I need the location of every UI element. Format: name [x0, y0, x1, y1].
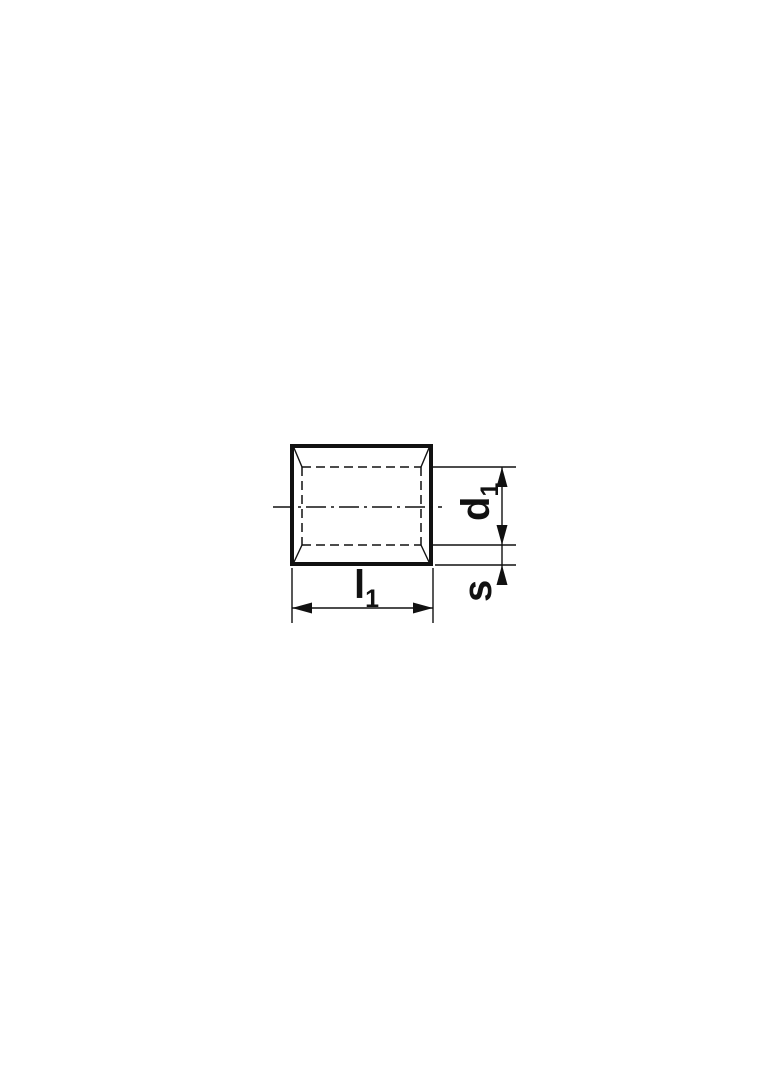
connector-outline [292, 446, 431, 564]
arrowhead-d1-bottom [497, 525, 508, 545]
drawing-page: d1 s l1 [0, 0, 784, 1066]
dimension-label-s: s [456, 580, 500, 602]
arrowhead-l1-left [292, 603, 312, 614]
arrowhead-l1-right [413, 603, 433, 614]
drawing-canvas: d1 s l1 [0, 0, 784, 1066]
dimension-label-d1: d1 [454, 483, 504, 521]
dimension-label-l1: l1 [354, 563, 379, 613]
